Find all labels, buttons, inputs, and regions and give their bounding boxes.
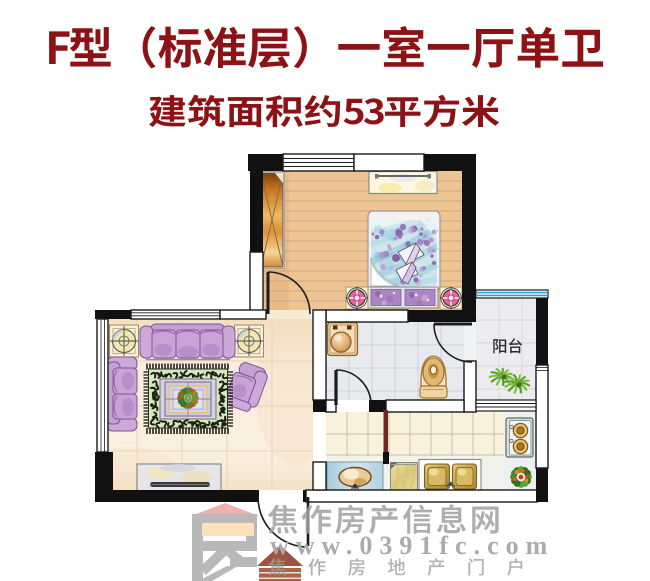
svg-text:www.0391fc.com: www.0391fc.com <box>270 531 554 560</box>
